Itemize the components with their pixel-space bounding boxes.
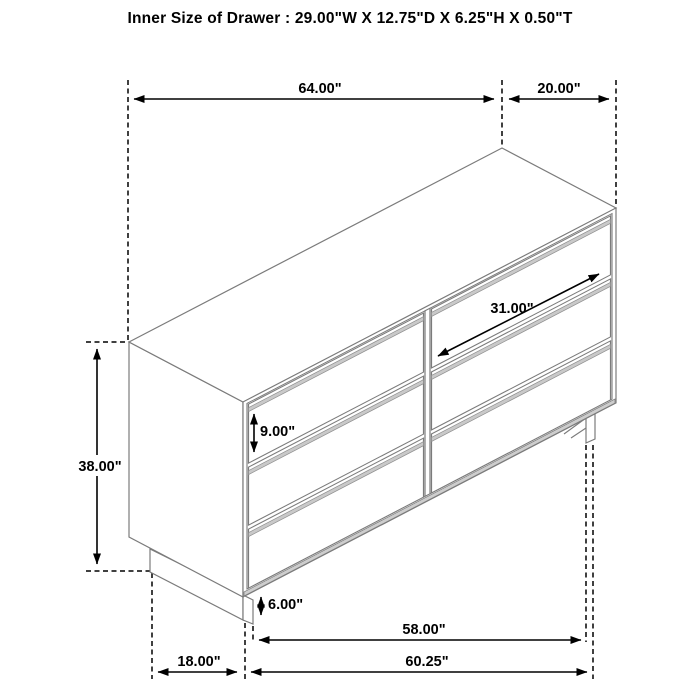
dim-label-base-width: 58.00" xyxy=(402,622,445,638)
dim-label-drawer-width: 31.00" xyxy=(490,301,533,317)
dresser-dimension-diagram: 64.00" 20.00" 38.00" 31.00" 9.00" 6.00" … xyxy=(0,0,700,700)
center-divider xyxy=(425,308,430,496)
front-left-leg xyxy=(243,595,253,624)
dim-label-bottom-width: 60.25" xyxy=(405,654,448,670)
dim-label-drawer-height: 9.00" xyxy=(260,424,295,440)
dim-label-leg-height: 6.00" xyxy=(268,597,303,613)
dimension-diagram-page: Inner Size of Drawer : 29.00"W X 12.75"D… xyxy=(0,0,700,700)
dim-label-top-depth: 20.00" xyxy=(537,81,580,97)
dim-label-height: 38.00" xyxy=(78,459,121,475)
dim-label-top-width: 64.00" xyxy=(298,81,341,97)
dim-label-base-depth: 18.00" xyxy=(177,654,220,670)
